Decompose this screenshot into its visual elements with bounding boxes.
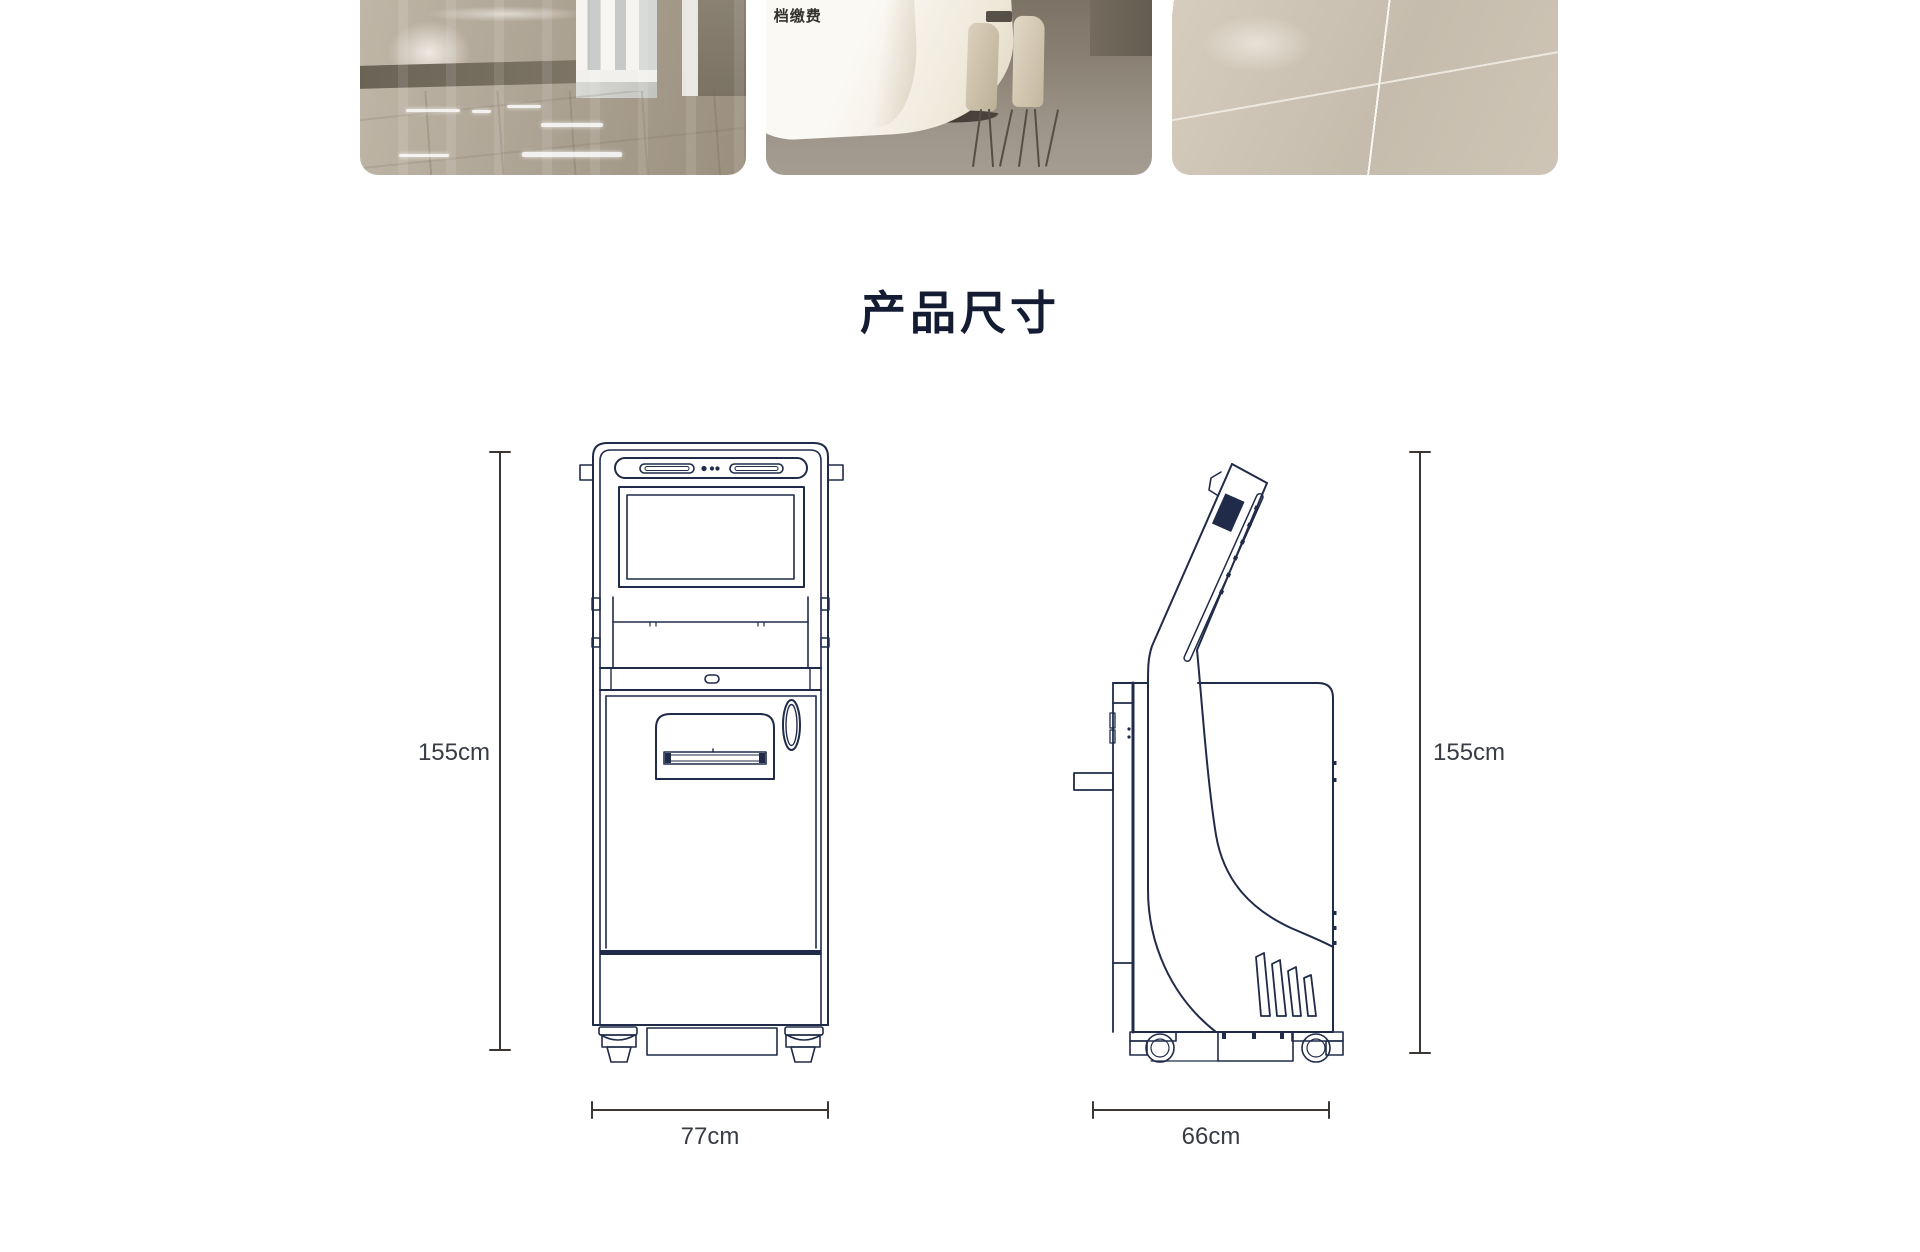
dimension-drawing [0,0,1920,1252]
front-base-panel [647,1028,777,1055]
side-head-neck [1148,464,1333,1032]
side-height-dimension-line [1410,452,1430,1053]
front-screen [619,487,804,587]
front-casters [599,1027,823,1062]
front-printer-slot [656,714,774,779]
front-mid-panel [613,597,808,668]
side-width-label: 66cm [1151,1122,1271,1152]
front-tray [600,668,821,690]
front-width-label: 77cm [650,1122,770,1152]
front-lock-handle [783,700,800,750]
side-bracket [1110,683,1133,1032]
side-vents [1256,953,1316,1016]
side-height-label: 155cm [1433,738,1553,768]
side-body [1113,683,1337,1032]
front-width-dimension-line [592,1102,828,1118]
side-width-dimension-line [1093,1102,1329,1118]
front-divider [600,950,821,955]
side-arm [1074,773,1113,790]
side-view-drawing [1074,464,1343,1062]
product-page: { "title": "产品尺寸", "gallery": { "photos"… [0,0,1920,1252]
front-scanner-bar [615,458,807,478]
front-height-label: 155cm [370,738,490,768]
front-height-dimension-line [490,452,510,1050]
front-view-drawing [580,443,843,1062]
side-casters [1130,1032,1343,1062]
